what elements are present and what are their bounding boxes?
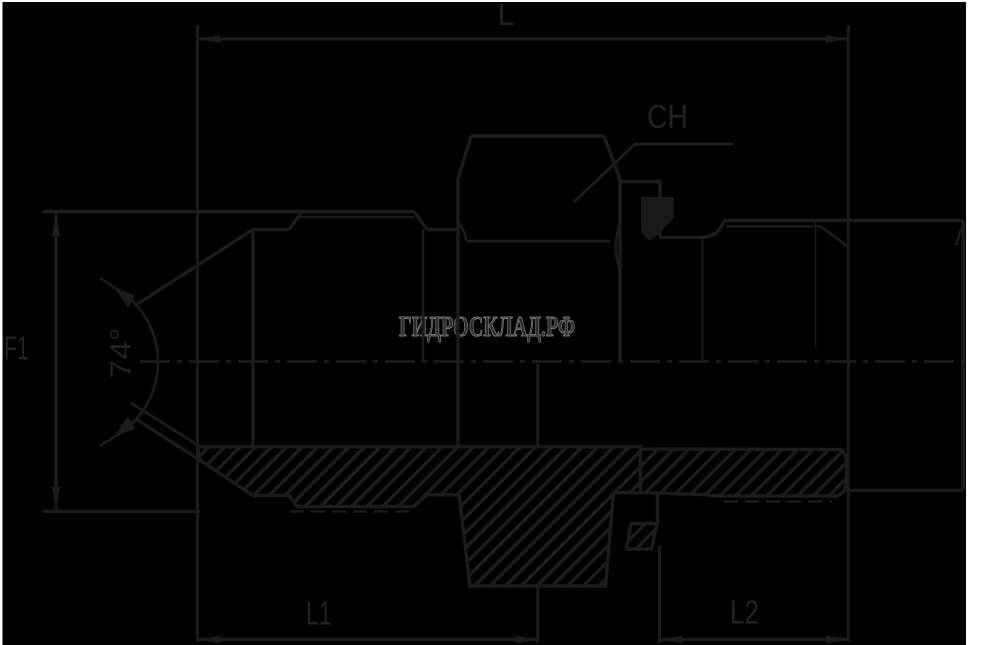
svg-text:74°: 74°: [105, 328, 138, 379]
svg-text:F1: F1: [4, 330, 29, 367]
svg-text:CH: CH: [647, 98, 688, 135]
svg-text:L1: L1: [306, 595, 332, 632]
svg-text:ГИДРОСКЛАД.РФ: ГИДРОСКЛАД.РФ: [399, 311, 575, 343]
svg-text:L: L: [498, 0, 515, 32]
svg-text:L2: L2: [730, 594, 759, 631]
